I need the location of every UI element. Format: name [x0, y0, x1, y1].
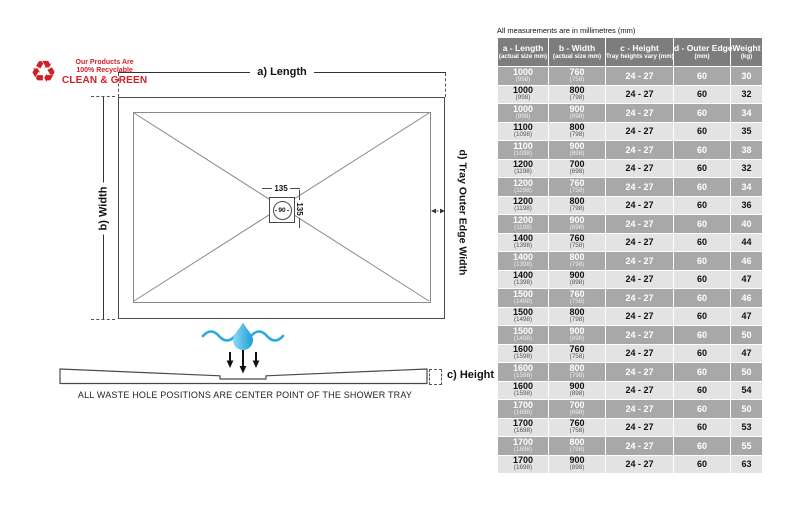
cell-outer-edge: 60: [674, 400, 730, 418]
table-row: 1100 (1098) 900 (898) 24 - 27 60 38: [498, 141, 762, 159]
cell-height: 24 - 27: [606, 215, 673, 233]
cell-length: 1600 (1598): [498, 382, 548, 400]
table-row: 1100 (1098) 800 (798) 24 - 27 60 35: [498, 123, 762, 141]
table-row: 1400 (1398) 760 (758) 24 - 27 60 44: [498, 234, 762, 252]
cell-outer-edge: 60: [674, 345, 730, 363]
cell-width: 760 (758): [549, 345, 605, 363]
waste-hole-dim-side: 135: [294, 181, 306, 237]
cell-outer-edge: 60: [674, 215, 730, 233]
cell-outer-edge: 60: [674, 271, 730, 289]
dimension-line: [287, 210, 290, 211]
cell-weight: 50: [731, 400, 762, 418]
header-width: b - Width (actual size mm): [549, 38, 605, 66]
header-length-main: a - Length: [498, 44, 548, 54]
header-length-sub: (actual size mm): [498, 53, 548, 60]
cell-length: 1700 (1698): [498, 456, 548, 474]
cell-height: 24 - 27: [606, 419, 673, 437]
header-width-main: b - Width: [549, 44, 605, 54]
cell-height: 24 - 27: [606, 437, 673, 455]
cell-height: 24 - 27: [606, 271, 673, 289]
cell-weight: 38: [731, 141, 762, 159]
cell-weight: 55: [731, 437, 762, 455]
outer-edge-arrow: [431, 209, 445, 214]
header-weight-sub: (kg): [731, 53, 762, 60]
cell-outer-edge: 60: [674, 67, 730, 85]
table-row: 1400 (1398) 900 (898) 24 - 27 60 47: [498, 271, 762, 289]
height-label: c) Height: [447, 369, 494, 381]
cell-length: 1500 (1498): [498, 326, 548, 344]
cell-height: 24 - 27: [606, 104, 673, 122]
cell-height: 24 - 27: [606, 178, 673, 196]
header-weight: Weight (kg): [731, 38, 762, 66]
cell-width: 760 (758): [549, 178, 605, 196]
cell-width: 800 (798): [549, 437, 605, 455]
cell-outer-edge: 60: [674, 308, 730, 326]
cell-width: 760 (758): [549, 234, 605, 252]
cell-width: 900 (898): [549, 141, 605, 159]
table-row: 1700 (1698) 760 (758) 24 - 27 60 53: [498, 419, 762, 437]
table-row: 1000 (998) 760 (758) 24 - 27 60 30: [498, 67, 762, 85]
header-height-sub: Tray heights vary (mm): [606, 53, 673, 60]
dimension-line: [300, 190, 301, 200]
cell-outer-edge: 60: [674, 141, 730, 159]
cell-outer-edge: 60: [674, 456, 730, 474]
cell-weight: 53: [731, 419, 762, 437]
table-row: 1400 (1398) 800 (798) 24 - 27 60 46: [498, 252, 762, 270]
cell-length: 1200 (1198): [498, 160, 548, 178]
cell-length: 1600 (1598): [498, 363, 548, 381]
cell-width: 760 (758): [549, 289, 605, 307]
cell-weight: 47: [731, 271, 762, 289]
waste-hole-square: 90: [269, 197, 295, 223]
cell-height: 24 - 27: [606, 400, 673, 418]
table-row: 1200 (1198) 800 (798) 24 - 27 60 36: [498, 197, 762, 215]
cell-length: 1400 (1398): [498, 234, 548, 252]
cell-weight: 63: [731, 456, 762, 474]
table-row: 1600 (1598) 800 (798) 24 - 27 60 50: [498, 363, 762, 381]
waste-hole-diameter: 90: [278, 207, 285, 214]
table-row: 1700 (1698) 800 (798) 24 - 27 60 55: [498, 437, 762, 455]
cell-outer-edge: 60: [674, 178, 730, 196]
cell-length: 1000 (998): [498, 104, 548, 122]
dimension-line: [262, 188, 272, 189]
cell-width: 800 (798): [549, 252, 605, 270]
cell-length: 1100 (1098): [498, 141, 548, 159]
cell-weight: 54: [731, 382, 762, 400]
measurements-note: All measurements are in millimetres (mm): [497, 26, 635, 35]
cell-outer-edge: 60: [674, 289, 730, 307]
cell-width: 800 (798): [549, 363, 605, 381]
cell-height: 24 - 27: [606, 252, 673, 270]
cell-width: 900 (898): [549, 382, 605, 400]
cell-width: 800 (798): [549, 197, 605, 215]
height-dimension-bracket: [429, 369, 442, 385]
cell-weight: 40: [731, 215, 762, 233]
cell-weight: 32: [731, 86, 762, 104]
waste-hole-caption: ALL WASTE HOLE POSITIONS ARE CENTER POIN…: [35, 390, 455, 400]
table-row: 1200 (1198) 700 (698) 24 - 27 60 32: [498, 160, 762, 178]
flow-arrows: [227, 350, 260, 374]
cell-width: 900 (898): [549, 215, 605, 233]
table-row: 1500 (1498) 900 (898) 24 - 27 60 50: [498, 326, 762, 344]
cell-height: 24 - 27: [606, 86, 673, 104]
cell-length: 1100 (1098): [498, 123, 548, 141]
cell-length: 1000 (998): [498, 86, 548, 104]
table-row: 1600 (1598) 760 (758) 24 - 27 60 47: [498, 345, 762, 363]
cell-height: 24 - 27: [606, 141, 673, 159]
cell-length: 1500 (1498): [498, 289, 548, 307]
dimension-line: [275, 210, 278, 211]
table-row: 1000 (998) 800 (798) 24 - 27 60 32: [498, 86, 762, 104]
cell-outer-edge: 60: [674, 86, 730, 104]
table-row: 1500 (1498) 800 (798) 24 - 27 60 47: [498, 308, 762, 326]
cell-height: 24 - 27: [606, 345, 673, 363]
header-weight-main: Weight: [731, 44, 762, 54]
cell-outer-edge: 60: [674, 123, 730, 141]
cell-outer-edge: 60: [674, 234, 730, 252]
cell-width: 760 (758): [549, 67, 605, 85]
header-outer-edge-sub: (mm): [674, 53, 730, 60]
cell-width: 760 (758): [549, 419, 605, 437]
cell-weight: 46: [731, 289, 762, 307]
cell-height: 24 - 27: [606, 363, 673, 381]
table-row: 1000 (998) 900 (898) 24 - 27 60 34: [498, 104, 762, 122]
cell-outer-edge: 60: [674, 419, 730, 437]
cell-height: 24 - 27: [606, 326, 673, 344]
cell-outer-edge: 60: [674, 104, 730, 122]
table-row: 1200 (1198) 760 (758) 24 - 27 60 34: [498, 178, 762, 196]
cell-height: 24 - 27: [606, 197, 673, 215]
spec-sheet: ♻ Our Products Are 100% Recyclable CLEAN…: [0, 0, 800, 513]
cell-outer-edge: 60: [674, 252, 730, 270]
header-outer-edge: d - Outer Edge (mm): [674, 38, 730, 66]
cell-height: 24 - 27: [606, 308, 673, 326]
table-header-row: a - Length (actual size mm) b - Width (a…: [498, 38, 762, 66]
cell-weight: 47: [731, 308, 762, 326]
cell-weight: 50: [731, 326, 762, 344]
header-width-sub: (actual size mm): [549, 53, 605, 60]
water-drop-icon: [233, 323, 253, 351]
cell-weight: 47: [731, 345, 762, 363]
cell-outer-edge: 60: [674, 160, 730, 178]
cell-outer-edge: 60: [674, 382, 730, 400]
cell-length: 1700 (1698): [498, 437, 548, 455]
table-row: 1200 (1198) 900 (898) 24 - 27 60 40: [498, 215, 762, 233]
cell-outer-edge: 60: [674, 197, 730, 215]
cell-length: 1600 (1598): [498, 345, 548, 363]
cell-width: 700 (698): [549, 160, 605, 178]
header-outer-edge-main: d - Outer Edge: [674, 44, 730, 54]
table-row: 1700 (1698) 700 (698) 24 - 27 60 50: [498, 400, 762, 418]
cell-width: 800 (798): [549, 308, 605, 326]
cell-weight: 34: [731, 178, 762, 196]
waste-hole-circle: 90: [273, 201, 292, 220]
header-height-main: c - Height: [606, 44, 673, 54]
cell-outer-edge: 60: [674, 363, 730, 381]
cell-width: 900 (898): [549, 456, 605, 474]
cell-length: 1700 (1698): [498, 400, 548, 418]
table-row: 1600 (1598) 900 (898) 24 - 27 60 54: [498, 382, 762, 400]
cell-weight: 44: [731, 234, 762, 252]
cell-width: 800 (798): [549, 123, 605, 141]
cell-outer-edge: 60: [674, 326, 730, 344]
cell-height: 24 - 27: [606, 123, 673, 141]
cell-height: 24 - 27: [606, 382, 673, 400]
dim-135-top: 135: [272, 184, 289, 193]
cell-height: 24 - 27: [606, 456, 673, 474]
cell-length: 1400 (1398): [498, 271, 548, 289]
cell-length: 1000 (998): [498, 67, 548, 85]
cell-width: 800 (798): [549, 86, 605, 104]
dim-135-side: 135: [296, 200, 305, 217]
cell-width: 900 (898): [549, 326, 605, 344]
table-row: 1700 (1698) 900 (898) 24 - 27 60 63: [498, 456, 762, 474]
dimension-line: [300, 218, 301, 228]
cell-width: 900 (898): [549, 104, 605, 122]
cell-length: 1200 (1198): [498, 178, 548, 196]
cell-height: 24 - 27: [606, 160, 673, 178]
header-length: a - Length (actual size mm): [498, 38, 548, 66]
table-row: 1500 (1498) 760 (758) 24 - 27 60 46: [498, 289, 762, 307]
cell-height: 24 - 27: [606, 289, 673, 307]
cell-height: 24 - 27: [606, 67, 673, 85]
cell-weight: 34: [731, 104, 762, 122]
cell-length: 1400 (1398): [498, 252, 548, 270]
cell-width: 900 (898): [549, 271, 605, 289]
cell-weight: 30: [731, 67, 762, 85]
cell-weight: 36: [731, 197, 762, 215]
cell-outer-edge: 60: [674, 437, 730, 455]
cell-length: 1700 (1698): [498, 419, 548, 437]
cell-length: 1500 (1498): [498, 308, 548, 326]
cell-width: 700 (698): [549, 400, 605, 418]
cell-weight: 46: [731, 252, 762, 270]
dimensions-table: a - Length (actual size mm) b - Width (a…: [497, 37, 763, 474]
cell-height: 24 - 27: [606, 234, 673, 252]
cell-weight: 32: [731, 160, 762, 178]
cell-length: 1200 (1198): [498, 197, 548, 215]
cell-weight: 50: [731, 363, 762, 381]
cell-length: 1200 (1198): [498, 215, 548, 233]
cell-weight: 35: [731, 123, 762, 141]
header-height: c - Height Tray heights vary (mm): [606, 38, 673, 66]
